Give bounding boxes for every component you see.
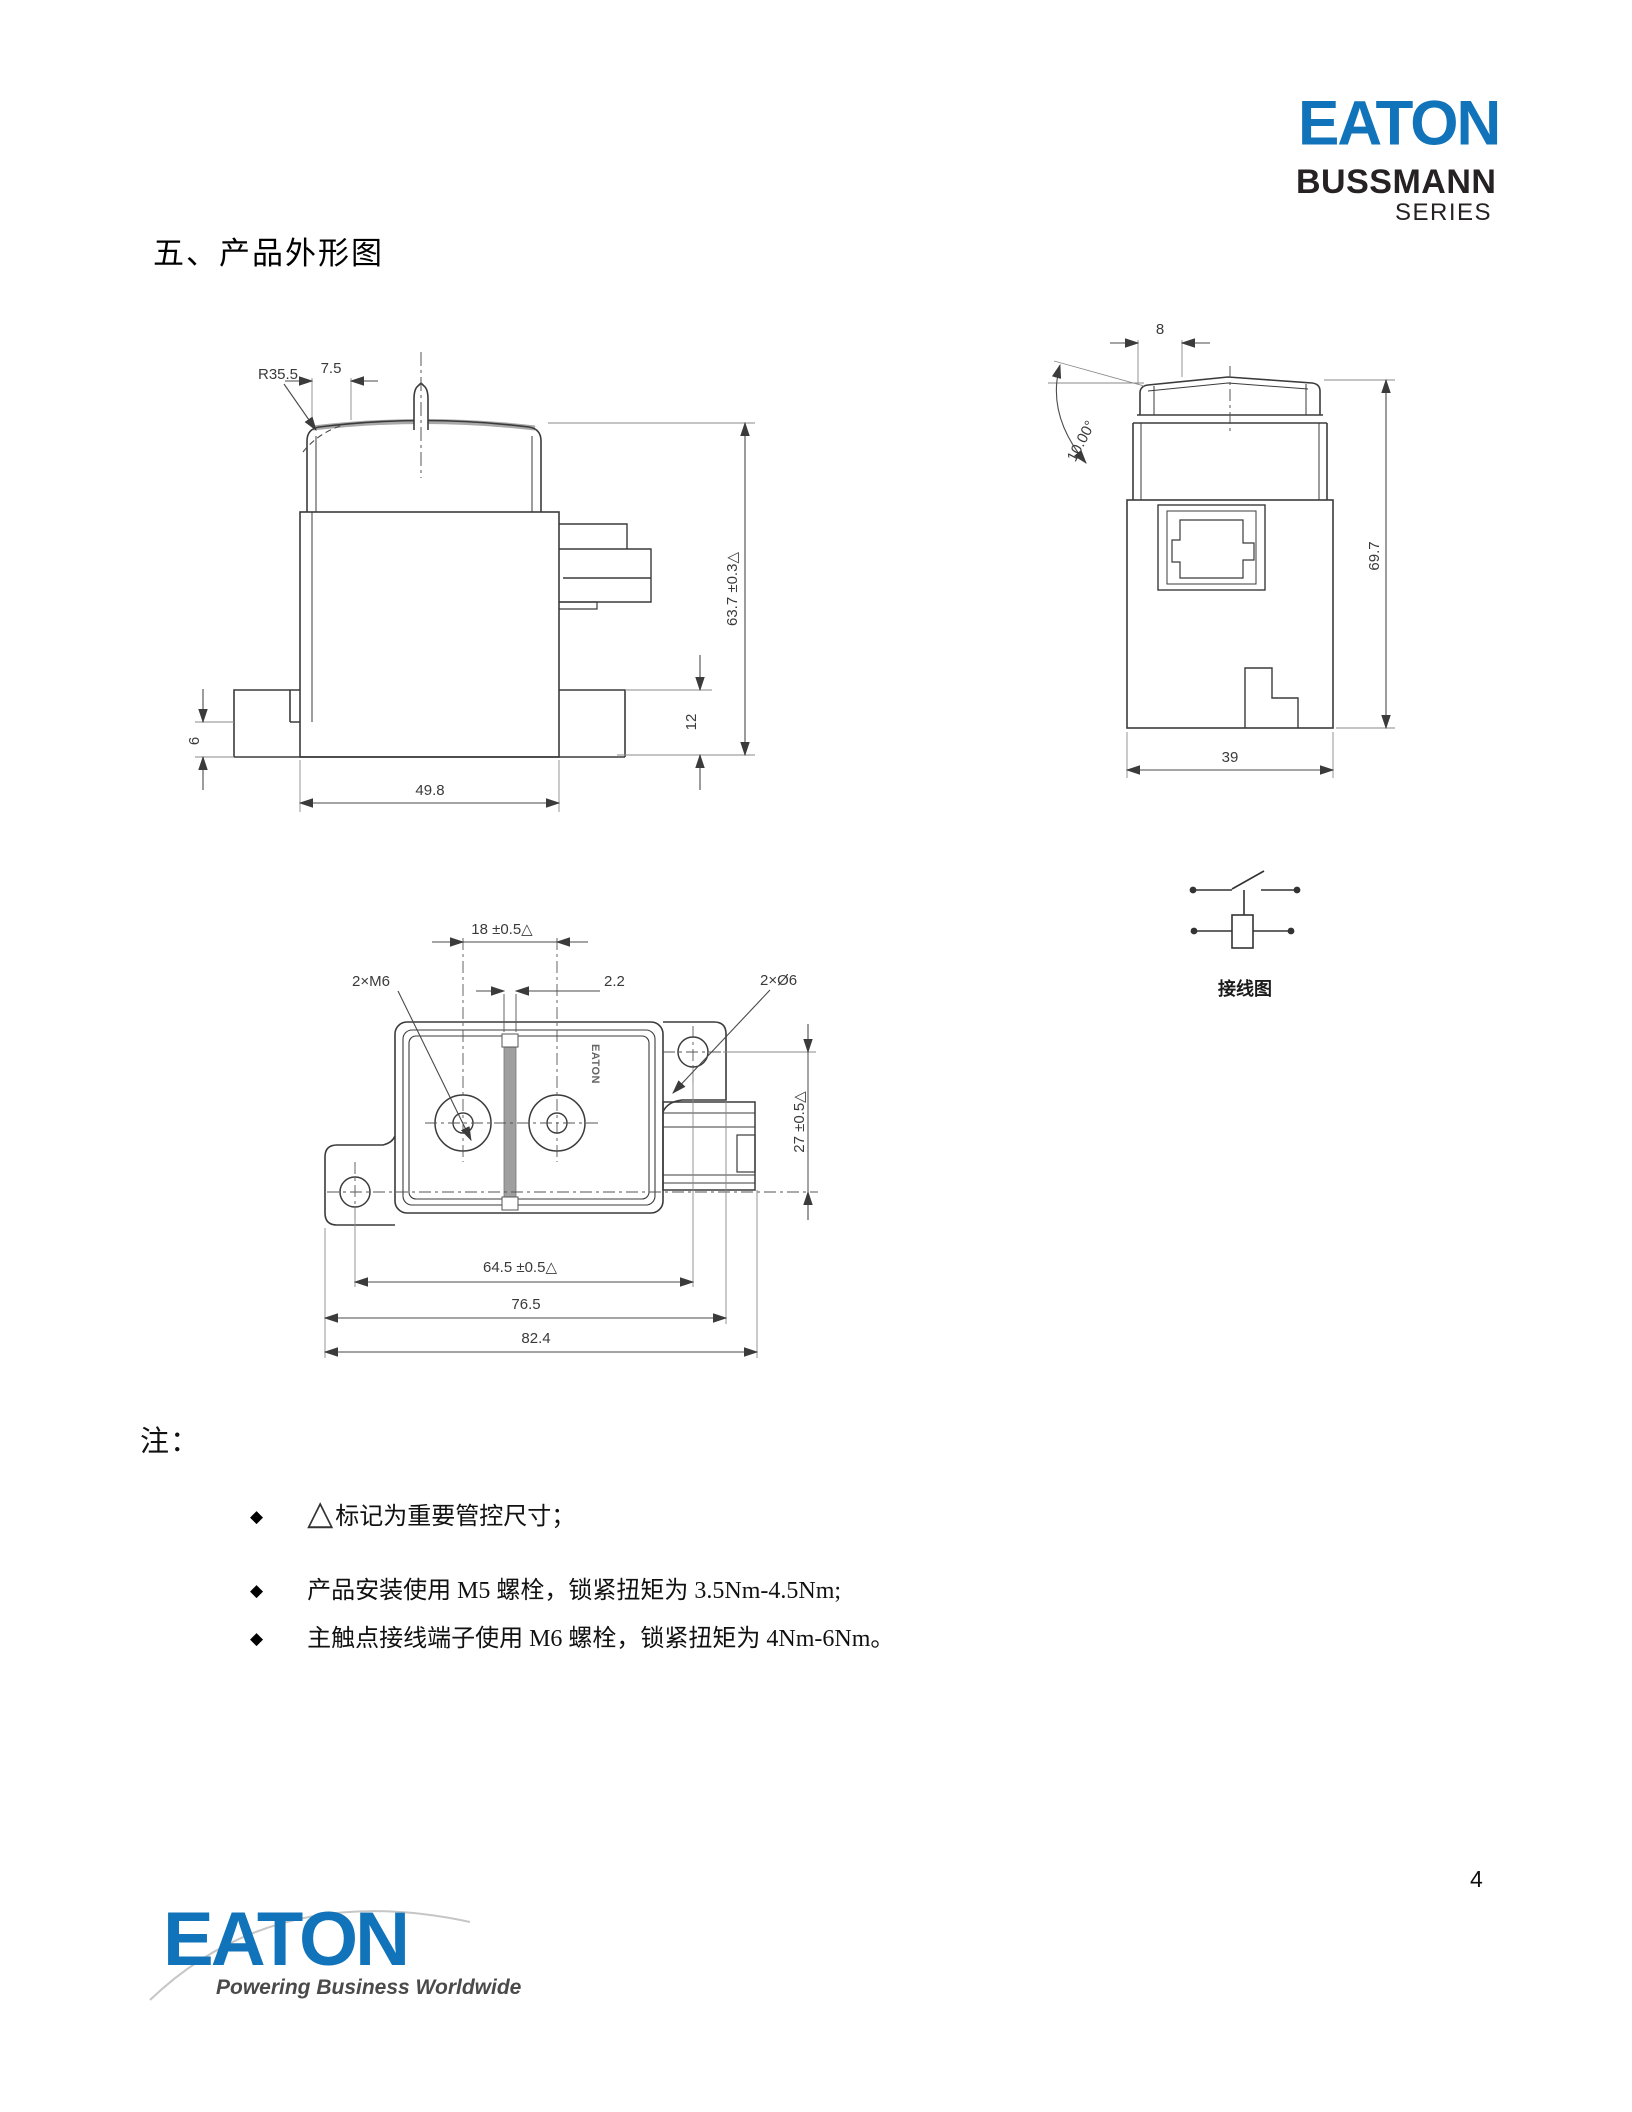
dim-label-thread: 2×M6: [352, 973, 390, 990]
molded-brand-marking: EATON: [589, 1044, 601, 1084]
dim-label-slot: 2.2: [604, 973, 625, 990]
dim-label-side-height: 69.7: [1366, 541, 1383, 570]
dim-label-hole-pitch-v: 27 ±0.5△: [791, 1091, 808, 1153]
note-item-2: ◆ 产品安装使用 M5 螺栓，锁紧扭矩为 3.5Nm-4.5Nm;: [250, 1570, 841, 1605]
note-text-3: 主触点接线端子使用 M6 螺栓，锁紧扭矩为 4Nm-6Nm。: [307, 1618, 894, 1653]
series-wordmark: SERIES: [1296, 199, 1492, 227]
dim-label-base-height: 6: [186, 737, 203, 745]
note-item-1: ◆ △ 标记为重要管控尺寸；: [250, 1496, 575, 1531]
dim-label-foot-height: 12: [683, 714, 700, 731]
front-view-drawing: R35.5 7.5 63.7 ±0.3△ 12 6 49.8: [140, 330, 800, 830]
diamond-bullet-icon: ◆: [250, 1581, 263, 1601]
divider-end-top: [502, 1034, 518, 1047]
eaton-logo-header: EATON: [1298, 87, 1499, 159]
wiring-diagram-label: 接线图: [1218, 978, 1272, 999]
dim-label-radius: R35.5: [258, 366, 298, 383]
relay-schematic: [1196, 871, 1294, 948]
note-text-1: 标记为重要管控尺寸；: [335, 1496, 575, 1531]
top-extension-lines: [325, 994, 816, 1358]
top-view-drawing: EATON 18 ±0.5△: [230, 898, 840, 1373]
dim-label-holes: 2×Ø6: [760, 972, 797, 989]
dim-label-flange-span: 76.5: [511, 1296, 540, 1313]
dim-label-cap-offset: 8: [1156, 321, 1164, 338]
top-centerlines: [327, 938, 818, 1223]
wiring-diagram: 接线图: [1140, 845, 1350, 1015]
dim-label-terminal-pitch: 18 ±0.5△: [471, 921, 533, 938]
top-dimension-lines: [325, 942, 808, 1352]
diamond-bullet-icon: ◆: [250, 1507, 263, 1527]
notes-heading: 注：: [140, 1418, 1040, 1460]
diamond-bullet-icon: ◆: [250, 1629, 263, 1649]
side-extension-lines: [1048, 340, 1395, 778]
page-title: 五、产品外形图: [153, 228, 384, 273]
dim-label-angle: 10.00°: [1064, 418, 1099, 464]
dim-label-width: 49.8: [415, 782, 444, 799]
note-item-3: ◆ 主触点接线端子使用 M6 螺栓，锁紧扭矩为 4Nm-6Nm。: [250, 1618, 894, 1653]
page-number: 4: [1470, 1866, 1483, 1893]
note-text-2: 产品安装使用 M5 螺栓，锁紧扭矩为 3.5Nm-4.5Nm;: [307, 1570, 841, 1605]
important-dimension-symbol: △: [307, 1497, 333, 1531]
document-page: EATON BUSSMANN SERIES 五、产品外形图: [0, 0, 1632, 2112]
dim-label-height: 63.7 ±0.3△: [724, 552, 741, 626]
dim-label-top-width: 7.5: [321, 360, 342, 377]
front-extension-lines: [195, 378, 755, 812]
terminal-divider-bar: [504, 1034, 516, 1210]
front-dimension-lines: [203, 381, 745, 803]
schematic-terminals: [1190, 887, 1301, 935]
side-dimension-lines: [1056, 343, 1386, 770]
eaton-logo-footer: EATON: [163, 1896, 407, 1983]
relay-front-outline: [234, 383, 651, 757]
divider-end-bottom: [502, 1197, 518, 1210]
dim-label-hole-pitch-h: 64.5 ±0.5△: [483, 1259, 557, 1276]
notes-section: 注： ◆ △ 标记为重要管控尺寸； ◆ 产品安装使用 M5 螺栓，锁紧扭矩为 3…: [140, 1418, 1040, 1460]
dim-label-overall: 82.4: [521, 1330, 550, 1347]
bussmann-wordmark: BUSSMANN: [1296, 163, 1494, 202]
side-view-drawing: 8 10.00° 69.7 39: [1000, 265, 1440, 805]
footer-tagline: Powering Business Worldwide: [216, 1976, 521, 2000]
dim-label-side-width: 39: [1222, 749, 1239, 766]
